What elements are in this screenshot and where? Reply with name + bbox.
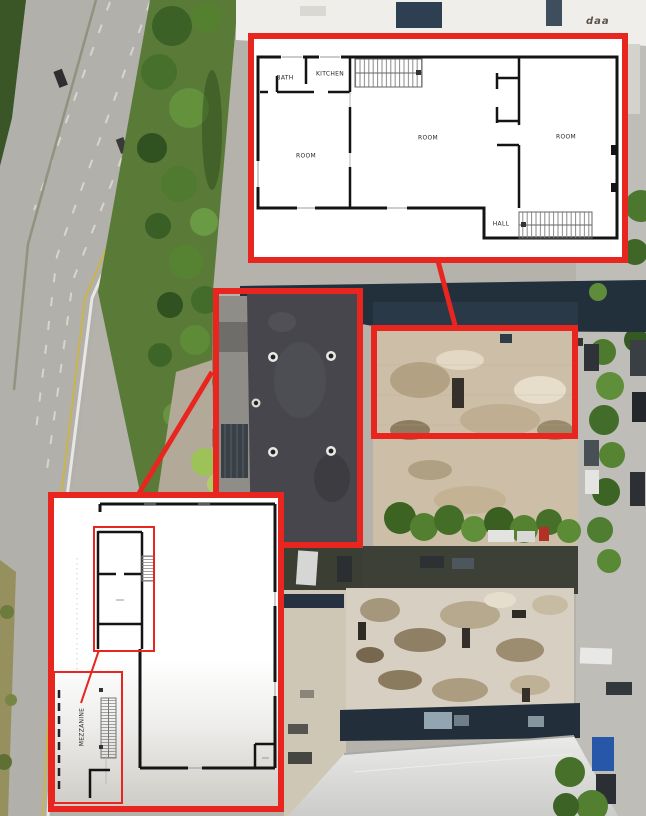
blue-truck (592, 737, 614, 771)
room-label-room-left: ROOM (296, 153, 316, 160)
parked-car (517, 531, 535, 542)
room-label-room-center: ROOM (418, 135, 438, 142)
floorplan-upper-walls (248, 33, 628, 263)
small-room (255, 744, 275, 768)
room-label-hall: HALL (493, 221, 510, 228)
room-label-mezzanine: MEZZANINE (79, 708, 86, 747)
parked-car-red (539, 527, 549, 541)
rooftop-unit (546, 0, 562, 26)
room-label-room-right: ROOM (556, 134, 576, 141)
staircase-inner-unit (142, 556, 154, 581)
parked-car (337, 556, 352, 582)
room-label-kitchen: KITCHEN (316, 71, 344, 78)
parked-car (488, 530, 514, 542)
highlight-box-tan-roof-building (371, 325, 578, 439)
white-van (296, 550, 318, 585)
inner-unit-walls (98, 531, 142, 649)
inset-box-unit (94, 527, 154, 651)
aerial-composite: daa (0, 0, 646, 816)
mezzanine-interior (59, 688, 116, 798)
white-pickup (580, 647, 613, 664)
parked-car (585, 470, 599, 494)
parked-car (452, 558, 474, 569)
parked-car (584, 344, 599, 371)
floorplan-lower-walls (48, 492, 284, 812)
bottom-building (346, 588, 574, 712)
parked-car (420, 556, 444, 568)
inset-callout-line (81, 650, 99, 703)
rooftop-unit (396, 2, 442, 28)
parked-car (606, 682, 632, 695)
staircase-upper (355, 59, 422, 87)
floorplan-lower: MEZZANINE (48, 492, 284, 812)
building-outline (100, 504, 275, 768)
parked-car (632, 392, 646, 422)
parked-car (630, 340, 646, 376)
parked-car (584, 440, 599, 466)
staircase-hall (519, 212, 592, 238)
floorplan-upper: BATH KITCHEN ROOM ROOM ROOM HALL (248, 33, 628, 263)
parked-car (630, 472, 645, 506)
room-label-bath: BATH (276, 75, 293, 82)
roof-text: daa (586, 16, 610, 27)
